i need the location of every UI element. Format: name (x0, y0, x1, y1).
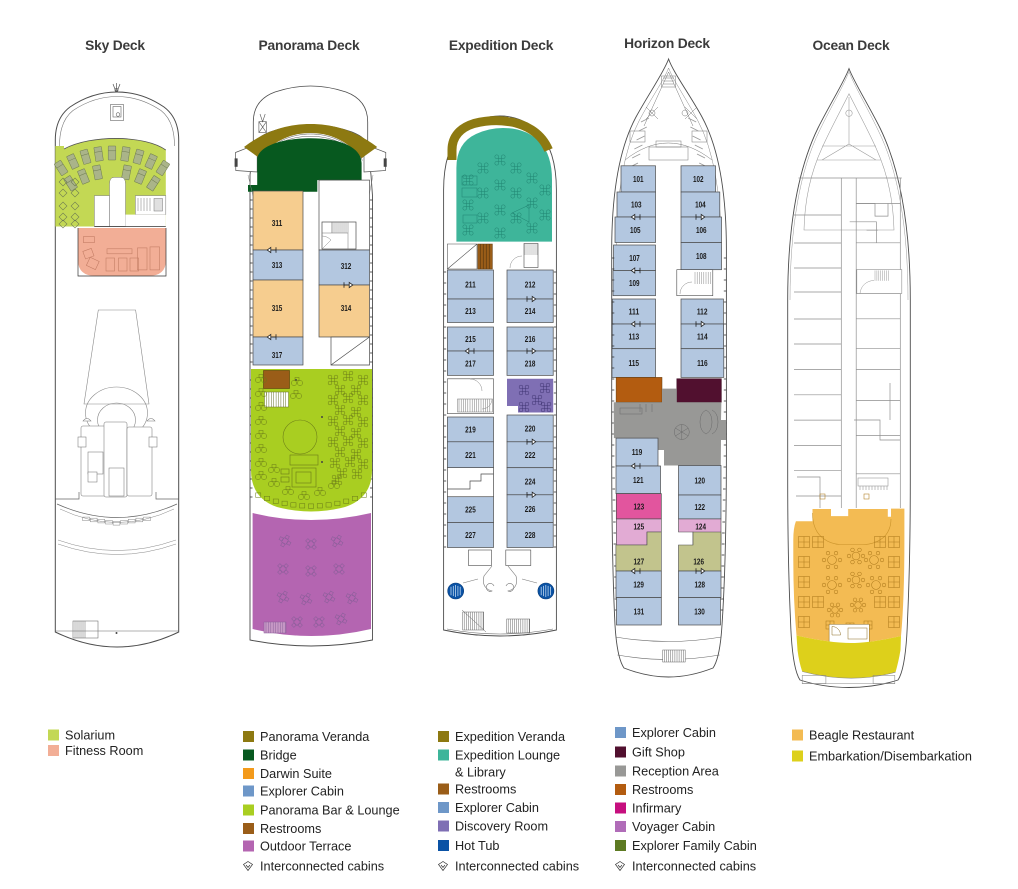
svg-text:Reception Area: Reception Area (632, 765, 720, 779)
svg-text:Discovery Room: Discovery Room (455, 820, 548, 834)
svg-text:116: 116 (697, 358, 708, 368)
svg-text:Voyager Cabin: Voyager Cabin (632, 820, 715, 834)
svg-text:227: 227 (465, 530, 476, 540)
svg-text:213: 213 (465, 306, 476, 316)
svg-text:Gift Shop: Gift Shop (632, 746, 685, 760)
svg-text:& Library: & Library (455, 766, 506, 780)
svg-text:Restrooms: Restrooms (260, 822, 321, 836)
svg-text:Interconnected cabins: Interconnected cabins (455, 860, 579, 874)
svg-text:Expedition Deck: Expedition Deck (449, 38, 554, 53)
svg-text:123: 123 (634, 501, 645, 511)
svg-text:218: 218 (525, 358, 536, 368)
svg-text:120: 120 (694, 475, 705, 485)
svg-text:217: 217 (465, 358, 476, 368)
svg-text:105: 105 (630, 225, 641, 235)
svg-text:226: 226 (525, 504, 536, 514)
svg-text:Panorama Veranda: Panorama Veranda (260, 730, 370, 744)
svg-text:Outdoor Terrace: Outdoor Terrace (260, 840, 351, 854)
svg-text:125: 125 (634, 522, 645, 532)
svg-text:314: 314 (341, 303, 352, 313)
svg-text:Interconnected cabins: Interconnected cabins (632, 860, 756, 874)
svg-text:113: 113 (629, 331, 640, 341)
svg-text:211: 211 (465, 280, 476, 290)
svg-text:103: 103 (631, 200, 642, 210)
svg-text:124: 124 (695, 522, 706, 532)
svg-text:108: 108 (696, 251, 707, 261)
svg-text:Expedition Veranda: Expedition Veranda (455, 730, 566, 744)
svg-text:104: 104 (695, 200, 706, 210)
svg-text:215: 215 (465, 334, 476, 344)
svg-text:119: 119 (632, 447, 643, 457)
svg-text:Embarkation/Disembarkation: Embarkation/Disembarkation (809, 750, 972, 764)
svg-text:122: 122 (694, 502, 705, 512)
svg-text:127: 127 (634, 557, 645, 567)
svg-text:106: 106 (696, 225, 707, 235)
svg-text:Darwin Suite: Darwin Suite (260, 767, 332, 781)
svg-text:101: 101 (633, 174, 644, 184)
svg-text:Restrooms: Restrooms (455, 783, 516, 797)
svg-text:311: 311 (272, 218, 283, 228)
svg-text:313: 313 (272, 260, 283, 270)
svg-text:216: 216 (525, 334, 536, 344)
svg-text:Restrooms: Restrooms (632, 783, 693, 797)
svg-text:219: 219 (465, 425, 476, 435)
svg-text:214: 214 (525, 306, 536, 316)
svg-text:Horizon Deck: Horizon Deck (624, 36, 710, 51)
svg-text:131: 131 (634, 606, 645, 616)
svg-text:Hot Tub: Hot Tub (455, 839, 499, 853)
svg-text:Explorer Cabin: Explorer Cabin (632, 726, 716, 740)
svg-text:111: 111 (629, 307, 640, 317)
svg-text:Solarium: Solarium (65, 729, 115, 743)
svg-text:Bridge: Bridge (260, 749, 297, 763)
svg-text:129: 129 (633, 579, 644, 589)
svg-text:Fitness Room: Fitness Room (65, 744, 143, 758)
svg-text:Panorama Deck: Panorama Deck (259, 38, 360, 53)
svg-text:Interconnected cabins: Interconnected cabins (260, 860, 384, 874)
svg-text:109: 109 (629, 278, 640, 288)
svg-text:Beagle Restaurant: Beagle Restaurant (809, 729, 915, 743)
svg-text:220: 220 (525, 424, 536, 434)
svg-text:221: 221 (465, 450, 476, 460)
svg-text:212: 212 (525, 280, 536, 290)
svg-text:Explorer Cabin: Explorer Cabin (260, 785, 344, 799)
svg-text:128: 128 (694, 579, 705, 589)
svg-text:126: 126 (693, 557, 704, 567)
svg-text:Panorama Bar & Lounge: Panorama Bar & Lounge (260, 804, 400, 818)
svg-text:315: 315 (272, 303, 283, 313)
svg-text:112: 112 (697, 307, 708, 317)
svg-text:317: 317 (272, 350, 283, 360)
svg-text:222: 222 (525, 450, 536, 460)
svg-text:225: 225 (465, 505, 476, 515)
svg-text:Expedition Lounge: Expedition Lounge (455, 749, 560, 763)
svg-text:107: 107 (629, 253, 640, 263)
svg-text:Explorer Cabin: Explorer Cabin (455, 801, 539, 815)
svg-text:312: 312 (341, 261, 352, 271)
svg-text:Ocean Deck: Ocean Deck (813, 38, 891, 53)
svg-text:115: 115 (628, 358, 639, 368)
svg-text:228: 228 (525, 530, 536, 540)
svg-text:102: 102 (693, 174, 704, 184)
svg-text:Explorer Family Cabin: Explorer Family Cabin (632, 839, 757, 853)
svg-text:114: 114 (697, 331, 708, 341)
svg-text:Sky Deck: Sky Deck (85, 38, 145, 53)
svg-text:Infirmary: Infirmary (632, 802, 682, 816)
svg-text:224: 224 (525, 476, 536, 486)
svg-text:121: 121 (633, 475, 644, 485)
svg-text:130: 130 (694, 606, 705, 616)
